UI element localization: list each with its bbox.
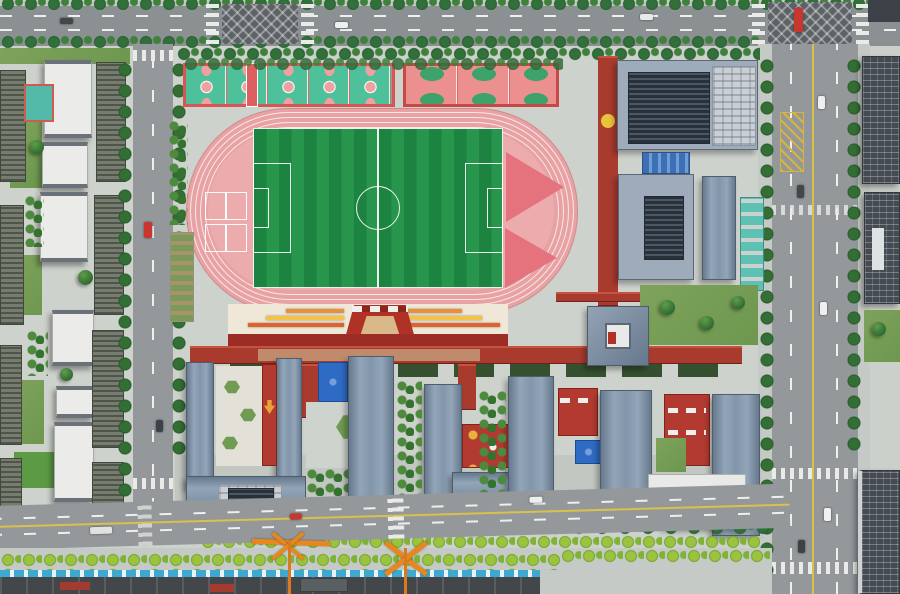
courtyard-benches bbox=[560, 398, 596, 403]
field-goal-area bbox=[487, 188, 503, 228]
courtyard-red bbox=[558, 388, 598, 436]
tree bbox=[732, 296, 745, 309]
corridor-node bbox=[601, 114, 615, 128]
school-building-roof bbox=[702, 176, 736, 280]
tree bbox=[700, 316, 714, 330]
residential-shrubs bbox=[26, 330, 48, 376]
left-road-lane-line bbox=[152, 50, 154, 510]
intersection-hatch bbox=[222, 4, 298, 44]
car bbox=[824, 508, 831, 521]
tree bbox=[660, 300, 675, 315]
field-center-circle bbox=[356, 186, 400, 230]
crane-pole bbox=[404, 548, 407, 594]
stripe bbox=[404, 309, 462, 313]
bus bbox=[90, 527, 112, 535]
residential-roof bbox=[56, 386, 94, 418]
top-road-trees bbox=[0, 0, 900, 10]
truck-red bbox=[794, 8, 803, 32]
car bbox=[60, 18, 73, 24]
grandstand-top-bar bbox=[352, 306, 408, 312]
campus-green bbox=[656, 438, 686, 472]
crosswalk bbox=[387, 494, 404, 538]
residential-facade bbox=[0, 70, 26, 182]
residential-facade bbox=[0, 205, 24, 325]
blue-playground bbox=[575, 440, 602, 464]
rooftop-units bbox=[740, 197, 764, 291]
residential-roof bbox=[42, 142, 88, 188]
construction-fence bbox=[0, 570, 540, 577]
car bbox=[156, 420, 163, 432]
riverside-trees bbox=[560, 548, 770, 564]
tree bbox=[78, 270, 93, 285]
car bbox=[335, 22, 348, 28]
courtyard-benches bbox=[668, 408, 706, 413]
blue-playground bbox=[318, 362, 348, 402]
pavilion-skylight-red bbox=[608, 332, 616, 344]
crane-pole bbox=[288, 540, 291, 594]
courtyard-benches bbox=[668, 430, 706, 435]
courtyard-red-strip bbox=[262, 364, 277, 466]
car-red bbox=[290, 513, 302, 519]
school-building-roof bbox=[348, 356, 394, 502]
courts-trees bbox=[183, 56, 563, 70]
corridor-north bbox=[598, 56, 618, 306]
office-building-top bbox=[868, 0, 900, 22]
residential-roof bbox=[40, 192, 88, 262]
infield-court bbox=[205, 224, 247, 252]
top-road-lane-line bbox=[0, 15, 900, 17]
infield-court bbox=[205, 192, 247, 220]
car bbox=[818, 96, 825, 109]
office-green bbox=[864, 310, 900, 362]
car bbox=[798, 540, 805, 553]
street-trees bbox=[117, 60, 133, 500]
crosswalk bbox=[137, 501, 152, 545]
crosswalk bbox=[772, 562, 858, 574]
car bbox=[797, 185, 804, 198]
crosswalk bbox=[752, 2, 765, 44]
stripe bbox=[286, 309, 344, 313]
construction-red bbox=[60, 582, 90, 590]
top-road-lane-line bbox=[0, 29, 900, 31]
office-building bbox=[858, 470, 900, 594]
skylight-strip bbox=[642, 152, 690, 174]
truck-red bbox=[144, 222, 152, 238]
rooftop-plant bbox=[712, 66, 756, 146]
crosswalk bbox=[206, 4, 219, 44]
campus-shrubs bbox=[396, 380, 422, 500]
tree bbox=[30, 140, 44, 154]
community-playground bbox=[24, 84, 54, 122]
intersection-hatch bbox=[768, 2, 852, 44]
construction-red bbox=[210, 584, 234, 592]
school-building-roof bbox=[186, 362, 214, 488]
campus-green bbox=[640, 285, 758, 345]
residential-roof bbox=[52, 310, 94, 366]
rooftop-solar bbox=[628, 72, 710, 144]
street-trees bbox=[846, 56, 861, 456]
right-road-lane-line bbox=[836, 44, 838, 594]
tree bbox=[872, 322, 886, 336]
office-core bbox=[872, 228, 884, 270]
garden-plots bbox=[170, 232, 194, 322]
rooftop-solar bbox=[644, 196, 684, 260]
car bbox=[640, 14, 653, 20]
barge bbox=[300, 578, 348, 592]
office-building bbox=[862, 56, 900, 184]
crosswalk bbox=[133, 50, 173, 61]
school-building-roof bbox=[276, 358, 302, 488]
car bbox=[529, 497, 542, 503]
right-road-median bbox=[812, 44, 814, 594]
field-goal-area bbox=[253, 188, 269, 228]
turn-box-hatch bbox=[780, 112, 804, 172]
aerial-photo bbox=[0, 0, 900, 594]
campus-west-shrubs bbox=[168, 120, 188, 225]
car bbox=[820, 302, 827, 315]
crosswalk bbox=[133, 478, 173, 489]
stripe bbox=[404, 316, 482, 320]
residential-shrubs bbox=[24, 195, 44, 247]
stripe bbox=[266, 316, 344, 320]
crosswalk bbox=[301, 4, 314, 44]
stripe bbox=[404, 323, 500, 327]
stripe bbox=[248, 323, 344, 327]
residential-roof bbox=[54, 422, 94, 502]
tree bbox=[60, 368, 73, 381]
residential-facade bbox=[0, 345, 22, 445]
